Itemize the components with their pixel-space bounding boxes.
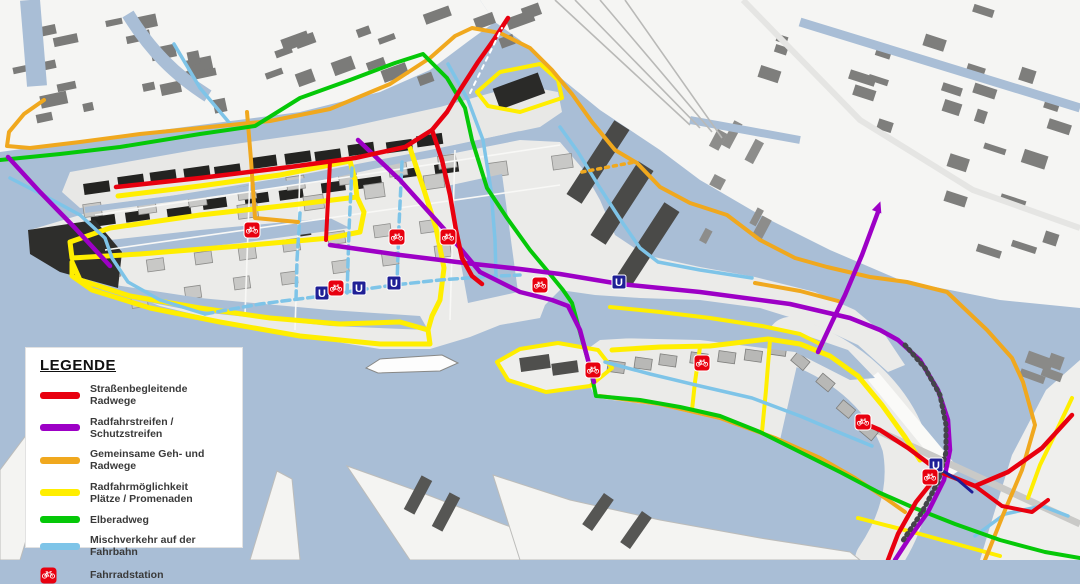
svg-text:U: U [355,283,363,295]
u-bahn-station-marker: U [612,275,626,289]
legend-label: Gemeinsame Geh- und Radwege [90,448,230,472]
u-bahn-station-marker: U [315,286,329,300]
legend-item-6: Fahrradstation [40,567,230,584]
bike-station-marker [389,229,405,245]
legend-item-2: Gemeinsame Geh- und Radwege [40,448,230,472]
legend-swatch [40,516,80,523]
legend-swatch [40,489,80,496]
legend-item-5: Mischverkehr auf der Fahrbahn [40,534,230,558]
bike-station-icon [40,567,80,584]
legend-swatch [40,424,80,431]
pier-3 [493,475,860,560]
legend-label: RadfahrmöglichkeitPlätze / Promenaden [90,481,193,505]
legend-label: Fahrradstation [90,569,164,581]
legend-label: Straßenbegleitende Radwege [90,383,230,407]
ship [366,355,458,373]
svg-text:U: U [318,288,326,300]
bike-station-marker [922,469,938,485]
svg-text:U: U [615,277,623,289]
alsterfleet-canal [30,0,37,86]
u-bahn-station-marker: U [387,276,401,290]
pier-1 [250,471,300,560]
svg-text:U: U [390,278,398,290]
legend-swatch [40,392,80,399]
u-bahn-station-marker: U [352,281,366,295]
legend-item-0: Straßenbegleitende Radwege [40,383,230,407]
bike-station-marker [328,280,344,296]
bike-station-marker [532,277,548,293]
bike-station-marker [585,362,601,378]
legend: LEGENDE Straßenbegleitende RadwegeRadfah… [25,347,243,548]
legend-items: Straßenbegleitende RadwegeRadfahrstreife… [40,383,230,584]
legend-item-4: Elberadweg [40,514,230,526]
bike-station-marker [244,222,260,238]
legend-label: Radfahrstreifen / Schutzstreifen [90,416,230,440]
legend-label: Elberadweg [90,514,149,526]
bike-station-marker [694,355,710,371]
legend-swatch [40,457,80,464]
legend-swatch [40,543,80,550]
legend-item-3: RadfahrmöglichkeitPlätze / Promenaden [40,481,230,505]
bike-station-marker [440,229,456,245]
legend-label: Mischverkehr auf der Fahrbahn [90,534,230,558]
bike-station-marker [855,414,871,430]
legend-title: LEGENDE [40,357,230,374]
legend-item-1: Radfahrstreifen / Schutzstreifen [40,416,230,440]
